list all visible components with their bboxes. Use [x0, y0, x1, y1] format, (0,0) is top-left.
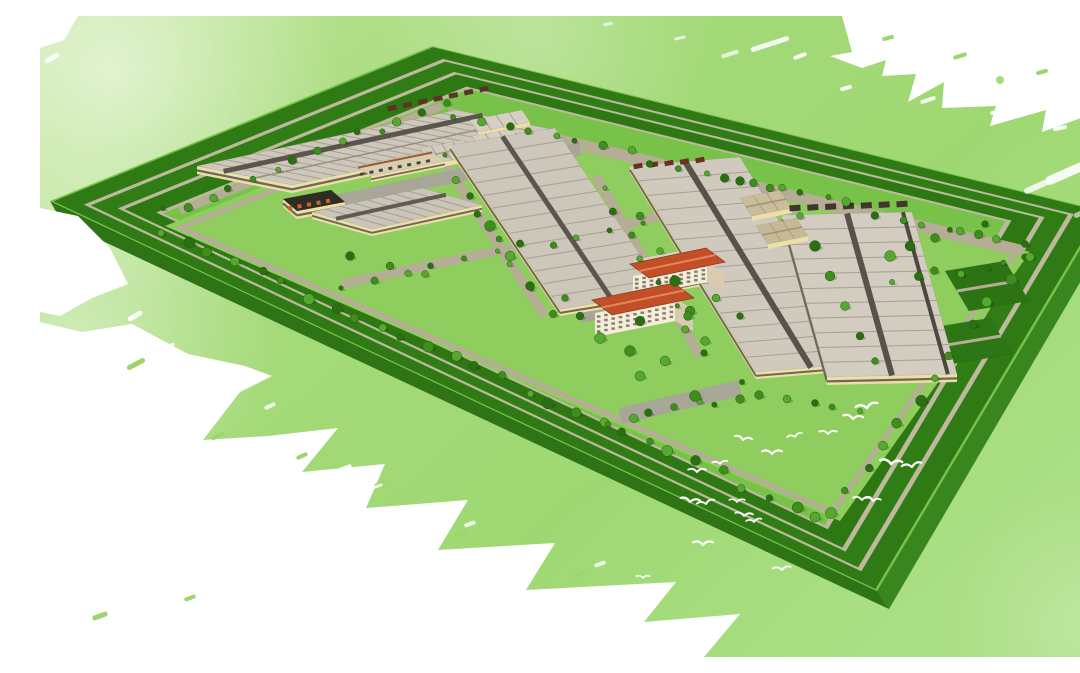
tree: [635, 371, 645, 381]
truck-row-3: [789, 205, 800, 212]
office-building-2-window: [687, 272, 691, 274]
tree: [755, 391, 764, 400]
tree: [810, 241, 821, 252]
tree: [346, 252, 355, 261]
tree: [749, 179, 757, 187]
tree: [931, 375, 938, 382]
office-building-1-window: [611, 322, 615, 324]
office-building-2-window: [702, 273, 706, 275]
tree: [477, 117, 486, 126]
office-building-1-window: [597, 325, 601, 327]
tree: [892, 418, 902, 428]
tree: [625, 346, 636, 357]
tree: [969, 320, 978, 329]
tree: [516, 240, 523, 247]
tree: [945, 352, 953, 360]
tree: [797, 213, 804, 220]
tree: [914, 272, 923, 281]
truck-row-3: [807, 204, 818, 211]
tree: [397, 334, 404, 341]
office-building-2-window: [635, 278, 639, 280]
tree: [550, 242, 557, 249]
tree: [386, 262, 394, 270]
tree: [160, 205, 165, 210]
tree: [766, 495, 773, 502]
workshop-window-row: [307, 202, 312, 207]
office-building-1-window: [604, 324, 608, 326]
tree: [812, 400, 819, 407]
workshop-window-row: [297, 204, 302, 209]
office-building-2-window: [665, 277, 669, 279]
tree: [562, 295, 569, 302]
tree: [857, 408, 862, 413]
tree: [332, 304, 342, 314]
tree: [736, 395, 745, 404]
tree: [900, 217, 907, 224]
tree: [992, 235, 1000, 243]
tree: [303, 294, 314, 305]
tree: [422, 271, 429, 278]
tree: [675, 304, 680, 309]
tree: [1001, 260, 1006, 265]
tree: [469, 361, 478, 370]
office-building-1-window: [662, 317, 666, 319]
tree: [958, 271, 965, 278]
tree: [467, 193, 474, 200]
tree: [720, 174, 729, 183]
tree: [885, 251, 896, 262]
tree: [495, 249, 500, 254]
industrial-park-aerial-rendering: [40, 16, 1080, 657]
tree: [202, 247, 212, 257]
tree: [314, 147, 322, 155]
office-building-2-window: [687, 276, 691, 278]
tree: [210, 194, 218, 202]
tree: [339, 138, 346, 145]
tree: [450, 114, 455, 119]
office-building-1-window: [662, 312, 666, 314]
office-building-1-window: [648, 315, 652, 317]
tree: [607, 228, 612, 233]
office-building-2-window: [642, 285, 646, 287]
tree: [525, 128, 532, 135]
tree: [339, 286, 344, 291]
aerial-render-canvas: [40, 16, 1080, 657]
tree: [474, 211, 481, 218]
tree: [810, 512, 820, 522]
office-building-1-window: [655, 319, 659, 321]
tree: [405, 270, 412, 277]
tree: [641, 221, 646, 226]
tree: [701, 350, 708, 357]
office-building-1-window: [597, 320, 601, 322]
tree: [380, 129, 385, 134]
office-building-1-window: [604, 329, 608, 331]
tree: [918, 222, 924, 228]
office-building-1-window: [619, 326, 623, 328]
truck-row-3: [825, 203, 836, 210]
tree: [184, 237, 195, 248]
tree: [889, 279, 894, 284]
tree: [974, 230, 983, 239]
tree: [646, 160, 653, 167]
tree: [444, 100, 451, 107]
tree: [418, 109, 426, 117]
tree: [505, 251, 515, 261]
office-building-2-window: [642, 277, 646, 279]
tree: [573, 235, 579, 241]
office-building-2-window: [694, 279, 698, 281]
office-building-2-window: [702, 278, 706, 280]
tree: [507, 261, 512, 266]
office-building-2-window: [650, 280, 654, 282]
tree: [647, 438, 654, 445]
tree: [660, 356, 670, 366]
tree: [637, 256, 643, 262]
office-building-2-window: [635, 283, 639, 285]
truck-row-3: [896, 201, 907, 208]
tree: [230, 257, 239, 266]
tree: [982, 221, 989, 228]
tree: [636, 212, 644, 220]
tree: [392, 118, 401, 127]
tree: [690, 391, 701, 402]
tree: [603, 186, 608, 191]
office-building-1-window: [670, 306, 674, 308]
tree: [1026, 253, 1035, 262]
tree: [259, 267, 267, 275]
tree: [982, 297, 992, 307]
office-building-1-window: [626, 319, 630, 321]
truck-row-3: [861, 202, 872, 209]
office-building-1-window: [633, 313, 637, 315]
tree: [712, 294, 720, 302]
tree: [871, 212, 879, 220]
tree: [276, 167, 281, 172]
office-building-2-window: [635, 287, 639, 289]
tree: [1022, 241, 1029, 248]
tree: [905, 241, 915, 251]
office-building-1-window: [662, 307, 666, 309]
office-building-1-window: [597, 315, 601, 317]
office-building-1-window: [655, 314, 659, 316]
tree: [792, 502, 803, 513]
office-building-1-window: [619, 316, 623, 318]
tree: [526, 282, 535, 291]
tree: [779, 184, 786, 191]
office-building-1-window: [611, 317, 615, 319]
tree: [371, 277, 378, 284]
office-building-1-window: [626, 324, 630, 326]
tree: [712, 402, 717, 407]
tree: [644, 409, 652, 417]
office-building-2-window: [665, 281, 669, 283]
office-building-2-window: [694, 271, 698, 273]
office-building-1-window: [670, 311, 674, 313]
tree: [576, 312, 584, 320]
tree: [635, 316, 645, 326]
tree: [628, 232, 635, 239]
tree: [842, 198, 851, 207]
tree: [856, 332, 864, 340]
tree: [628, 146, 636, 154]
workshop-window-row: [288, 206, 293, 211]
office-building-1-window: [619, 321, 623, 323]
tree: [485, 221, 496, 232]
tree: [704, 171, 709, 176]
office-building-1-window: [604, 314, 608, 316]
office-building-1-window: [648, 320, 652, 322]
tree: [554, 133, 560, 139]
tree: [681, 326, 688, 333]
tree: [527, 390, 534, 397]
tree: [783, 395, 791, 403]
tree: [872, 358, 879, 365]
office-building-2-window: [694, 275, 698, 277]
tree: [737, 485, 745, 493]
tree: [766, 184, 774, 192]
tree: [354, 129, 360, 135]
tree: [736, 177, 745, 186]
tree: [542, 398, 553, 409]
tree: [250, 176, 256, 182]
tree: [350, 314, 359, 323]
tree: [571, 408, 581, 418]
tree: [498, 371, 506, 379]
tree: [691, 455, 701, 465]
tree: [719, 465, 728, 474]
tree: [956, 227, 964, 235]
tree: [947, 227, 952, 232]
tree: [657, 248, 664, 255]
tree: [423, 341, 434, 352]
tree: [572, 138, 577, 143]
tree: [684, 312, 693, 321]
office-building-2-window: [650, 284, 654, 286]
tree: [797, 189, 803, 195]
office-building-1-window: [626, 314, 630, 316]
tree: [595, 333, 606, 344]
office-building-2-window: [687, 281, 691, 283]
tree: [629, 414, 638, 423]
paint-speckle: [996, 76, 1004, 84]
tree: [985, 265, 991, 271]
tree: [916, 395, 927, 406]
tree: [841, 487, 848, 494]
tree: [662, 445, 673, 456]
office-building-1-window: [597, 330, 601, 332]
tree: [618, 428, 626, 436]
tree: [739, 379, 744, 384]
tree: [701, 337, 710, 346]
tree: [496, 236, 502, 242]
office-building-1-window: [648, 310, 652, 312]
office-building-1-window: [640, 312, 644, 314]
tree: [452, 176, 459, 183]
tree: [1006, 274, 1017, 285]
truck-row-3: [878, 201, 889, 208]
tree: [829, 404, 835, 410]
tree: [656, 280, 661, 285]
workshop-window-row: [316, 200, 321, 205]
tree: [826, 194, 831, 199]
tree: [599, 141, 608, 150]
tree: [841, 302, 850, 311]
office-building-2-window: [702, 269, 706, 271]
tree: [461, 256, 466, 261]
office-building-2-window: [642, 281, 646, 283]
office-building-2-window: [679, 274, 683, 276]
tree: [452, 351, 462, 361]
tree: [671, 404, 678, 411]
tree: [609, 208, 616, 215]
tree: [379, 324, 387, 332]
tree: [825, 271, 835, 281]
tree: [865, 464, 873, 472]
tree: [605, 421, 610, 426]
tree: [184, 203, 193, 212]
office-building-1-window: [655, 309, 659, 311]
tree: [443, 153, 448, 158]
office-building-1-window: [670, 316, 674, 318]
office-building-1-window: [611, 327, 615, 329]
tree: [428, 263, 434, 269]
office-building-1-window: [604, 319, 608, 321]
tree: [549, 310, 556, 317]
tree: [675, 166, 681, 172]
tree: [825, 507, 836, 518]
tree: [737, 313, 744, 320]
workshop-window-row: [326, 199, 331, 204]
tree: [930, 267, 938, 275]
tree: [288, 156, 297, 165]
tree: [507, 123, 515, 131]
tree: [277, 277, 284, 284]
tree: [931, 234, 940, 243]
tree: [224, 185, 231, 192]
tree: [158, 230, 165, 237]
tree: [670, 276, 681, 287]
tree: [878, 441, 887, 450]
